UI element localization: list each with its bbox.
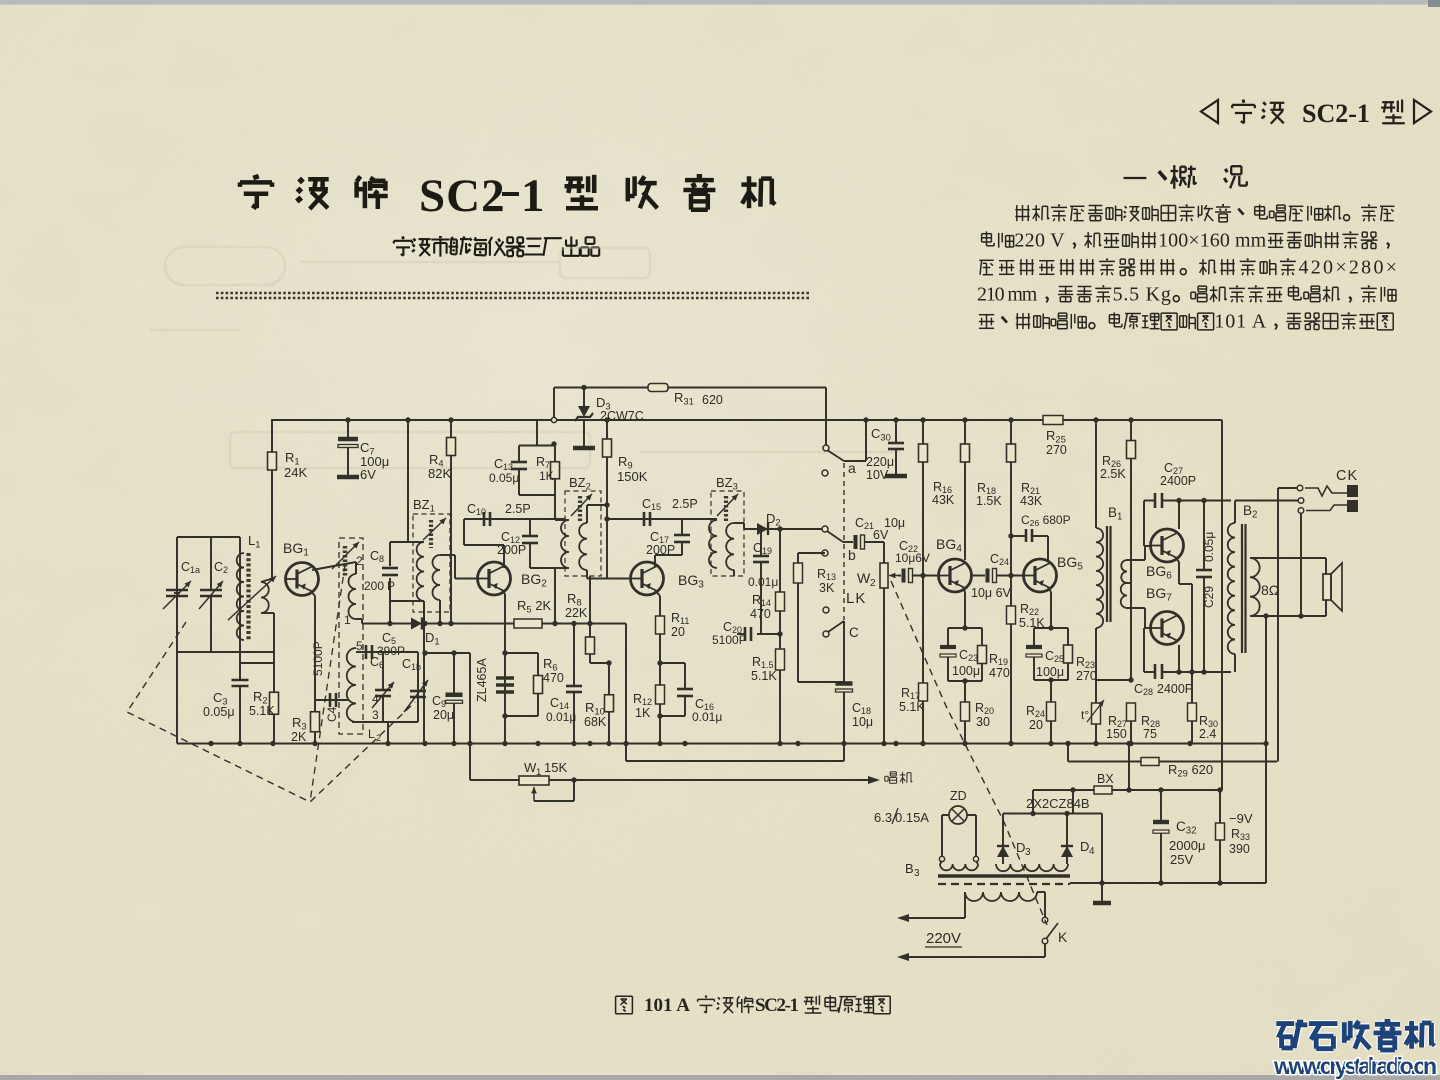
svg-text:0.05μ: 0.05μ	[203, 705, 235, 719]
svg-text:82K: 82K	[428, 466, 451, 481]
svg-text:1.5K: 1.5K	[976, 494, 1002, 508]
svg-text:30: 30	[976, 715, 990, 729]
svg-text:ZL465A: ZL465A	[475, 658, 489, 702]
svg-text:10μ: 10μ	[852, 715, 873, 729]
svg-text:20μ: 20μ	[433, 708, 454, 722]
svg-text:100μ: 100μ	[952, 664, 980, 678]
svg-text:SC2-1: SC2-1	[1302, 99, 1370, 128]
svg-text:LK: LK	[846, 590, 866, 607]
svg-text:8Ω: 8Ω	[1261, 582, 1279, 598]
svg-text:B: B	[905, 861, 914, 876]
svg-text:1K: 1K	[539, 469, 554, 483]
svg-text:270: 270	[1046, 443, 1067, 457]
svg-text:220 V: 220 V	[1014, 230, 1065, 252]
svg-text:3: 3	[372, 708, 379, 722]
svg-text:SC2-1: SC2-1	[755, 995, 799, 1016]
svg-text:2: 2	[356, 554, 363, 568]
svg-text:5: 5	[356, 639, 363, 653]
svg-text:200P: 200P	[646, 543, 675, 557]
svg-text:6V: 6V	[360, 467, 376, 482]
svg-text:BX: BX	[1097, 772, 1114, 786]
svg-text:22K: 22K	[565, 606, 588, 620]
svg-text:15K: 15K	[544, 760, 567, 775]
svg-text:101 A: 101 A	[644, 995, 690, 1016]
svg-text:5100P: 5100P	[311, 641, 325, 676]
svg-text:470: 470	[989, 666, 1010, 680]
svg-text:1: 1	[521, 170, 545, 222]
svg-text:C29: C29	[1202, 586, 1216, 608]
svg-text:270: 270	[1076, 669, 1097, 683]
svg-text:C26 680P: C26 680P	[1021, 513, 1071, 528]
svg-text:43K: 43K	[1020, 494, 1043, 508]
svg-text:470: 470	[750, 607, 771, 621]
svg-text:2000μ: 2000μ	[1169, 838, 1205, 853]
svg-text:100μ: 100μ	[1036, 665, 1064, 679]
svg-text:100×160 mm: 100×160 mm	[1158, 230, 1267, 252]
svg-text:0.05μ: 0.05μ	[489, 471, 519, 485]
svg-text:2.5K: 2.5K	[1100, 467, 1126, 481]
svg-text:25V: 25V	[1170, 852, 1193, 867]
svg-text:0.05μ: 0.05μ	[1202, 532, 1216, 562]
svg-text:2.5P: 2.5P	[672, 497, 698, 511]
svg-text:24K: 24K	[284, 465, 307, 480]
svg-text:P: P	[387, 579, 395, 593]
svg-text:0.01μ: 0.01μ	[692, 710, 722, 724]
svg-text:−9V: −9V	[1229, 811, 1253, 826]
svg-text:4: 4	[1089, 846, 1095, 857]
svg-text:t°: t°	[1081, 708, 1089, 722]
svg-text:R5 2K: R5 2K	[517, 598, 551, 614]
svg-text:www.crystalradio.cn: www.crystalradio.cn	[1273, 1053, 1437, 1079]
svg-text:220V: 220V	[926, 930, 961, 947]
svg-text:0.01μ: 0.01μ	[546, 710, 576, 724]
svg-text:220μ: 220μ	[866, 455, 894, 469]
svg-text:390P: 390P	[377, 644, 405, 658]
svg-text:620: 620	[702, 393, 723, 407]
svg-text:0.15A: 0.15A	[895, 810, 929, 825]
svg-text:1K: 1K	[635, 706, 651, 720]
svg-text:210 mm: 210 mm	[977, 284, 1038, 306]
svg-text:0.01μ: 0.01μ	[748, 575, 778, 589]
svg-text:2.5P: 2.5P	[505, 502, 531, 516]
svg-text:K: K	[1058, 929, 1068, 945]
svg-text:150: 150	[1106, 727, 1127, 741]
svg-text:470: 470	[543, 671, 564, 685]
svg-text:101 A: 101 A	[1214, 311, 1266, 333]
svg-text:2X2CZ84B: 2X2CZ84B	[1026, 796, 1090, 811]
svg-text:C4: C4	[325, 706, 339, 722]
svg-text:D: D	[1080, 839, 1089, 854]
svg-text:b: b	[848, 547, 856, 563]
svg-text:D: D	[1016, 840, 1025, 855]
svg-text:2.4: 2.4	[1199, 727, 1216, 741]
svg-text:5.1K: 5.1K	[751, 669, 777, 683]
svg-text:20: 20	[1029, 718, 1043, 732]
svg-text:75: 75	[1143, 727, 1157, 741]
svg-text:390: 390	[1229, 842, 1250, 856]
svg-text:5.1K: 5.1K	[249, 704, 275, 718]
svg-text:2400P: 2400P	[1160, 474, 1196, 488]
svg-text:5100P: 5100P	[712, 633, 747, 647]
svg-text:150K: 150K	[617, 469, 648, 484]
svg-text:1: 1	[536, 767, 541, 778]
svg-text:2: 2	[870, 578, 876, 589]
svg-text:1: 1	[344, 613, 351, 627]
svg-text:43K: 43K	[932, 493, 955, 507]
svg-text:3: 3	[914, 868, 920, 879]
svg-text:10V: 10V	[866, 468, 889, 482]
svg-text:3K: 3K	[819, 581, 835, 595]
svg-text:3: 3	[1025, 847, 1031, 858]
svg-text:200P: 200P	[497, 543, 526, 557]
svg-text:ZD: ZD	[950, 789, 967, 803]
svg-text:SC2: SC2	[419, 170, 506, 222]
svg-text:5.5 Kg: 5.5 Kg	[1113, 284, 1171, 306]
svg-text:2400P: 2400P	[1157, 682, 1193, 696]
svg-text:68K: 68K	[584, 715, 607, 729]
svg-text:20: 20	[671, 625, 685, 639]
svg-text:200: 200	[364, 579, 384, 593]
svg-text:6.3: 6.3	[874, 810, 892, 825]
svg-text:10μ6V: 10μ6V	[895, 551, 930, 565]
svg-text:C: C	[849, 625, 859, 640]
svg-text:a: a	[848, 460, 856, 476]
svg-text:W: W	[857, 570, 871, 586]
svg-text:CK: CK	[1336, 468, 1358, 484]
svg-text:5.1K: 5.1K	[899, 700, 925, 714]
svg-text:L: L	[368, 727, 375, 741]
svg-text:R29 620: R29 620	[1168, 762, 1213, 778]
svg-text:6V: 6V	[873, 528, 889, 542]
svg-text:2K: 2K	[291, 730, 307, 744]
svg-text:10μ 6V: 10μ 6V	[971, 586, 1012, 600]
